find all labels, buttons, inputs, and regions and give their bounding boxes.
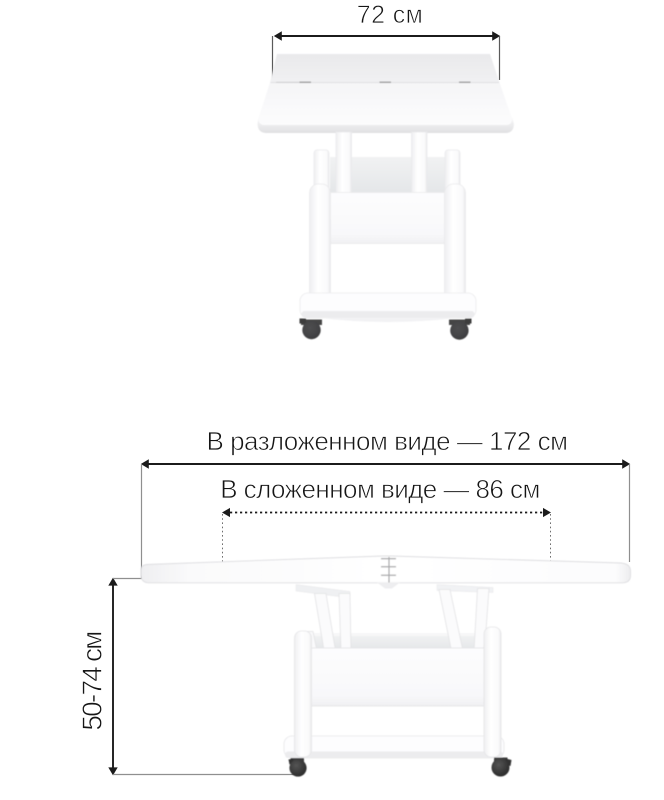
svg-text:В разложенном виде — 172 см: В разложенном виде — 172 см (207, 426, 568, 456)
svg-text:72 см: 72 см (357, 1, 423, 29)
svg-text:50-74 см: 50-74 см (77, 632, 108, 731)
svg-text:В сложенном виде — 86 см: В сложенном виде — 86 см (220, 474, 540, 504)
